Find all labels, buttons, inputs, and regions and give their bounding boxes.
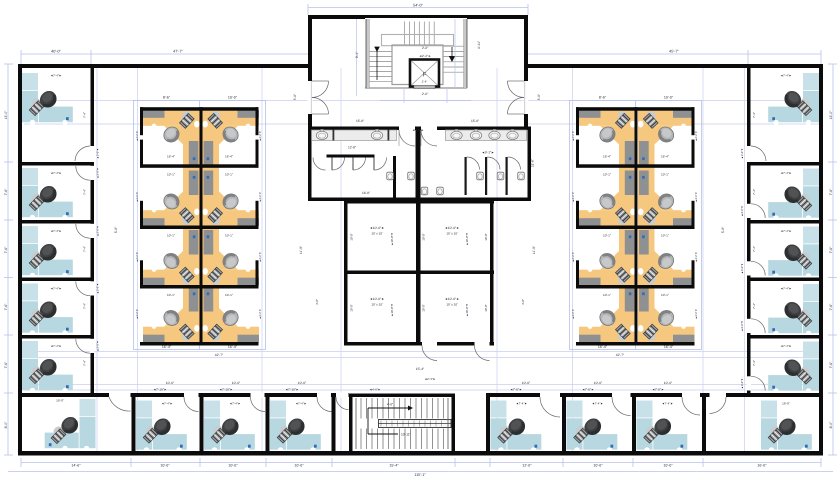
svg-text:10'-0": 10'-0" <box>593 464 603 468</box>
svg-text:7'-4": 7'-4" <box>83 189 87 195</box>
svg-text:7'-6": 7'-6" <box>4 246 8 254</box>
svg-text:▲4'-2"▼: ▲4'-2"▼ <box>136 130 139 141</box>
svg-text:▲4'-2"▼: ▲4'-2"▼ <box>695 308 698 319</box>
svg-text:◄7'-6"►: ◄7'-6"► <box>582 388 594 392</box>
svg-text:◄7'-10"►: ◄7'-10"► <box>219 388 233 392</box>
svg-text:▲3'-0"▼: ▲3'-0"▼ <box>97 167 100 178</box>
svg-text:◄7'-6"►: ◄7'-6"► <box>652 388 664 392</box>
svg-text:10'-1": 10'-1" <box>225 293 233 297</box>
svg-text:10'-1": 10'-1" <box>225 173 233 177</box>
svg-text:7'-6": 7'-6" <box>829 246 833 254</box>
svg-text:42'-7": 42'-7" <box>215 353 224 357</box>
svg-text:◄9'-1"►: ◄9'-1"► <box>482 151 495 155</box>
svg-text:▲3'-0"▼: ▲3'-0"▼ <box>741 378 744 389</box>
svg-text:12'-8": 12'-8" <box>348 146 356 150</box>
svg-text:◄7'-4"►: ◄7'-4"► <box>50 287 62 291</box>
svg-text:▲10'-0"▼: ▲10'-0"▼ <box>465 303 469 316</box>
svg-text:▲4'-2"▼: ▲4'-2"▼ <box>572 191 575 202</box>
svg-text:10'-1": 10'-1" <box>167 234 175 238</box>
svg-text:11'-0": 11'-0" <box>299 245 303 254</box>
svg-text:11'-6": 11'-6" <box>531 159 535 167</box>
svg-text:▲3'-0"▼: ▲3'-0"▼ <box>741 148 744 159</box>
svg-text:▲3'-0"▼: ▲3'-0"▼ <box>741 320 744 331</box>
svg-text:13'-0": 13'-0" <box>4 110 8 119</box>
svg-text:2'-8": 2'-8" <box>422 92 429 96</box>
svg-text:10'-0": 10'-0" <box>522 381 531 385</box>
svg-text:◄7'-4"►: ◄7'-4"► <box>50 344 62 348</box>
svg-text:7'-4": 7'-4" <box>752 189 756 195</box>
svg-text:5'-0": 5'-0" <box>537 94 541 100</box>
svg-text:F: F <box>423 72 427 79</box>
svg-text:16'-0": 16'-0" <box>782 402 790 406</box>
svg-text:◄4'-0"►: ◄4'-0"► <box>369 388 381 392</box>
svg-text:7'-4": 7'-4" <box>83 303 87 309</box>
svg-text:10'-0": 10'-0" <box>422 304 426 311</box>
svg-text:45'-7": 45'-7" <box>669 50 679 54</box>
svg-text:16'-0": 16'-0" <box>362 191 370 195</box>
svg-text:12'-0": 12'-0" <box>522 464 532 468</box>
svg-text:◄7'-4"►: ◄7'-4"► <box>780 74 792 78</box>
svg-text:◄2'-4"►: ◄2'-4"► <box>424 377 436 381</box>
svg-text:15'-4": 15'-4" <box>389 464 399 468</box>
svg-text:10'-1": 10'-1" <box>603 173 611 177</box>
svg-text:7'-6": 7'-6" <box>829 303 833 311</box>
svg-text:10'-0": 10'-0" <box>664 381 673 385</box>
svg-text:10' x 10': 10' x 10' <box>446 232 458 236</box>
svg-text:7'-4": 7'-4" <box>83 360 87 366</box>
svg-text:10'-0": 10'-0" <box>594 381 603 385</box>
svg-text:15'-4": 15'-4" <box>416 367 425 371</box>
svg-text:5'-0": 5'-0" <box>114 226 118 233</box>
svg-text:10'-0": 10'-0" <box>166 381 175 385</box>
svg-text:16'-0": 16'-0" <box>757 464 767 468</box>
svg-text:16'-4": 16'-4" <box>167 155 175 159</box>
svg-text:▲4'-2"▼: ▲4'-2"▼ <box>259 251 262 262</box>
svg-text:▲4'-2"▼: ▲4'-2"▼ <box>136 191 139 202</box>
svg-text:◄7'-4"►: ◄7'-4"► <box>780 287 792 291</box>
svg-text:▲4'-2"▼: ▲4'-2"▼ <box>572 308 575 319</box>
svg-text:16'-4": 16'-4" <box>661 155 669 159</box>
svg-text:10'-0": 10'-0" <box>160 464 170 468</box>
svg-text:42'-7": 42'-7" <box>616 353 625 357</box>
svg-text:10'-11": 10'-11" <box>401 433 411 437</box>
svg-text:15'-0": 15'-0" <box>356 119 364 123</box>
svg-text:◄7'-4"►: ◄7'-4"► <box>780 171 792 175</box>
svg-text:◄7'-10"►: ◄7'-10"► <box>153 388 167 392</box>
svg-text:10' x 10': 10' x 10' <box>446 303 458 307</box>
svg-text:13'-0": 13'-0" <box>829 110 833 119</box>
svg-text:8'-0": 8'-0" <box>4 421 8 429</box>
svg-text:◄7'-4"►: ◄7'-4"► <box>780 344 792 348</box>
svg-text:▲4'-2"▼: ▲4'-2"▼ <box>695 191 698 202</box>
svg-text:◄7'-4"►: ◄7'-4"► <box>161 402 173 406</box>
svg-text:7'-6": 7'-6" <box>4 361 8 369</box>
svg-text:▲3'-0"▼: ▲3'-0"▼ <box>741 205 744 216</box>
svg-text:▲3'-0"▼: ▲3'-0"▼ <box>741 263 744 274</box>
svg-text:◄7'-6"►: ◄7'-6"► <box>510 388 522 392</box>
svg-text:10'-0": 10'-0" <box>664 96 674 100</box>
svg-text:10'-0": 10'-0" <box>663 464 673 468</box>
svg-text:◄7'-4"►: ◄7'-4"► <box>50 74 62 78</box>
svg-text:▲10'-0"▼: ▲10'-0"▼ <box>390 232 394 245</box>
svg-text:7'-4": 7'-4" <box>83 246 87 252</box>
svg-text:◄7'-4"►: ◄7'-4"► <box>50 229 62 233</box>
svg-text:10'-0": 10'-0" <box>350 304 354 311</box>
svg-text:◄10'-0"►: ◄10'-0"► <box>370 297 385 301</box>
svg-text:7'-4": 7'-4" <box>83 112 87 118</box>
svg-text:◄2'-0"►: ◄2'-0"► <box>412 128 424 132</box>
svg-text:16'-4": 16'-4" <box>603 155 611 159</box>
svg-text:7'-6": 7'-6" <box>829 361 833 369</box>
svg-text:◄7'-4"►: ◄7'-4"► <box>592 402 604 406</box>
svg-text:▲4'-2"▼: ▲4'-2"▼ <box>695 251 698 262</box>
svg-text:16'-4": 16'-4" <box>228 345 238 349</box>
svg-text:8'-6": 8'-6" <box>163 96 171 100</box>
svg-text:16'-4": 16'-4" <box>664 345 674 349</box>
svg-text:7'-4": 7'-4" <box>752 112 756 118</box>
svg-text:◄7'-4"►: ◄7'-4"► <box>516 402 528 406</box>
svg-text:10' x 10': 10' x 10' <box>371 303 383 307</box>
svg-text:8'-0": 8'-0" <box>829 421 833 429</box>
svg-text:10' x 10': 10' x 10' <box>371 232 383 236</box>
svg-text:◄7'-4"►: ◄7'-4"► <box>50 171 62 175</box>
svg-text:▲4'-2"▼: ▲4'-2"▼ <box>259 308 262 319</box>
svg-text:▲4'-2"▼: ▲4'-2"▼ <box>695 130 698 141</box>
svg-text:▲3'-0"▼: ▲3'-0"▼ <box>97 225 100 236</box>
svg-text:40'-0": 40'-0" <box>51 50 61 54</box>
svg-text:◄7'-4"►: ◄7'-4"► <box>295 402 307 406</box>
svg-text:◄7'-4"►: ◄7'-4"► <box>229 402 241 406</box>
svg-text:16'-4": 16'-4" <box>162 345 172 349</box>
svg-text:◄10'-0"►: ◄10'-0"► <box>445 297 460 301</box>
svg-text:◄10'-0"►: ◄10'-0"► <box>445 226 460 230</box>
svg-text:7'-4": 7'-4" <box>752 303 756 309</box>
svg-text:10'-1": 10'-1" <box>661 293 669 297</box>
svg-text:10'-0": 10'-0" <box>422 233 426 240</box>
svg-text:8'-6": 8'-6" <box>599 96 607 100</box>
svg-text:16'-0": 16'-0" <box>56 399 64 403</box>
svg-text:10'-0": 10'-0" <box>228 96 238 100</box>
svg-text:5'-0": 5'-0" <box>293 94 297 100</box>
svg-text:7'-6": 7'-6" <box>4 188 8 196</box>
svg-text:▲4'-2"▼: ▲4'-2"▼ <box>259 191 262 202</box>
svg-text:4'-11": 4'-11" <box>477 40 481 49</box>
svg-text:7'-6": 7'-6" <box>4 303 8 311</box>
svg-text:▲3'-0"▼: ▲3'-0"▼ <box>97 340 100 351</box>
svg-text:15'-0": 15'-0" <box>471 119 479 123</box>
svg-text:4'-0": 4'-0" <box>521 299 525 305</box>
svg-text:▲4'-2"▼: ▲4'-2"▼ <box>572 130 575 141</box>
svg-text:4'-0": 4'-0" <box>315 299 319 305</box>
svg-text:10'-1": 10'-1" <box>167 173 175 177</box>
svg-text:7'-6": 7'-6" <box>829 188 833 196</box>
svg-text:10'-1": 10'-1" <box>661 234 669 238</box>
svg-text:10'-0": 10'-0" <box>484 304 488 311</box>
svg-text:◄2'-2"►: ◄2'-2"► <box>419 54 431 58</box>
svg-text:▲10'-0"▼: ▲10'-0"▼ <box>390 303 394 316</box>
svg-text:10'-0": 10'-0" <box>484 233 488 240</box>
svg-text:54'-0": 54'-0" <box>413 4 423 8</box>
svg-text:▲4'-2"▼: ▲4'-2"▼ <box>259 130 262 141</box>
svg-text:▲3'-0"▼: ▲3'-0"▼ <box>97 283 100 294</box>
svg-text:▲3'-0"▼: ▲3'-0"▼ <box>97 148 100 159</box>
svg-text:10'-0": 10'-0" <box>228 464 238 468</box>
svg-text:10'-1": 10'-1" <box>225 234 233 238</box>
svg-text:16'-4": 16'-4" <box>225 155 233 159</box>
svg-text:10'-1": 10'-1" <box>603 293 611 297</box>
svg-text:14'-6": 14'-6" <box>71 464 81 468</box>
svg-text:16'-4": 16'-4" <box>598 345 608 349</box>
svg-text:◄7'-4"►: ◄7'-4"► <box>662 402 674 406</box>
svg-text:7'-4": 7'-4" <box>752 246 756 252</box>
svg-text:115'-1": 115'-1" <box>414 473 426 477</box>
svg-text:10'-1": 10'-1" <box>167 293 175 297</box>
svg-text:5'-0": 5'-0" <box>721 226 725 233</box>
svg-text:10'-0": 10'-0" <box>350 233 354 240</box>
svg-text:10'-0": 10'-0" <box>298 381 307 385</box>
svg-text:◄10'-0"►: ◄10'-0"► <box>370 226 385 230</box>
svg-text:9'-1": 9'-1" <box>355 51 359 58</box>
svg-text:10'-1": 10'-1" <box>661 173 669 177</box>
svg-text:47'-7": 47'-7" <box>173 50 183 54</box>
svg-text:4'-0": 4'-0" <box>387 403 393 407</box>
svg-text:10'-1": 10'-1" <box>603 234 611 238</box>
svg-text:▲4'-2"▼: ▲4'-2"▼ <box>136 308 139 319</box>
svg-text:10'-0": 10'-0" <box>232 381 241 385</box>
svg-text:2'-8": 2'-8" <box>422 46 429 50</box>
svg-text:◄7'-4"►: ◄7'-4"► <box>780 229 792 233</box>
svg-text:7'-4": 7'-4" <box>752 360 756 366</box>
svg-text:▲4'-2"▼: ▲4'-2"▼ <box>572 251 575 262</box>
svg-text:▲4'-2"▼: ▲4'-2"▼ <box>136 251 139 262</box>
svg-text:11'-0": 11'-0" <box>532 245 536 254</box>
svg-text:10'-0": 10'-0" <box>294 464 304 468</box>
svg-text:◄7'-10"►: ◄7'-10"► <box>285 388 299 392</box>
svg-text:▲10'-0"▼: ▲10'-0"▼ <box>465 232 469 245</box>
svg-text:2'-4": 2'-4" <box>422 80 428 84</box>
